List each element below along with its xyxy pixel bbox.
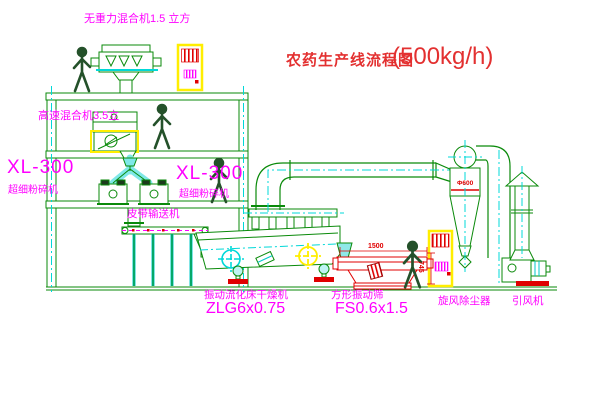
dim-sieve-height: 745 bbox=[417, 261, 424, 273]
conveyor-legs bbox=[134, 234, 191, 286]
exhaust-duct bbox=[251, 160, 458, 212]
person-second-floor bbox=[154, 105, 170, 148]
label-high-speed-mixer: 高速混合机3.5立 bbox=[38, 111, 119, 122]
label-dryer-name: 振动流化床干燥机 bbox=[204, 290, 288, 301]
induced-draft-fan bbox=[502, 258, 550, 286]
label-belt-conveyor: 皮带输送机 bbox=[127, 209, 180, 220]
label-dryer-model: ZLG6x0.75 bbox=[206, 301, 285, 317]
label-cyclone: 旋风除尘器 bbox=[438, 296, 491, 307]
mill-right bbox=[138, 180, 170, 204]
label-gravity-mixer: 无重力混合机1.5 立方 bbox=[84, 14, 190, 25]
label-mill-right-name: 超细粉碎机 bbox=[179, 190, 229, 200]
process-flow-diagram: 农药生产线流程图 (500kg/h) 无重力混合机1.5 立方 高速混合机3.5… bbox=[0, 0, 600, 403]
mill-left bbox=[97, 180, 129, 204]
sieve-feed-funnel bbox=[337, 243, 352, 258]
label-sieve-name: 方形振动筛 bbox=[331, 290, 384, 301]
dim-sieve-width: 1500 bbox=[368, 243, 384, 250]
label-sieve-model: FS0.6x1.5 bbox=[335, 301, 408, 317]
gravity-mixer bbox=[91, 45, 161, 93]
dim-cyclone-diameter: Φ600 bbox=[457, 181, 473, 188]
fan-base bbox=[516, 281, 549, 286]
page-title-capacity: (500kg/h) bbox=[392, 45, 493, 69]
label-mill-left-model: XL-300 bbox=[7, 158, 74, 177]
cabinet-display bbox=[435, 262, 448, 271]
person-top-floor bbox=[74, 48, 90, 91]
control-cabinet-1 bbox=[178, 45, 202, 90]
exhaust-stack bbox=[506, 166, 538, 260]
y-duct bbox=[113, 158, 149, 183]
label-mill-right-model: XL-300 bbox=[176, 164, 243, 183]
fluid-bed-dryer bbox=[196, 209, 344, 269]
vibration-motor-right bbox=[314, 264, 334, 282]
cabinet-display bbox=[184, 70, 196, 78]
label-fan: 引风机 bbox=[512, 296, 544, 307]
label-mill-left-name: 超细粉碎机 bbox=[8, 186, 58, 196]
